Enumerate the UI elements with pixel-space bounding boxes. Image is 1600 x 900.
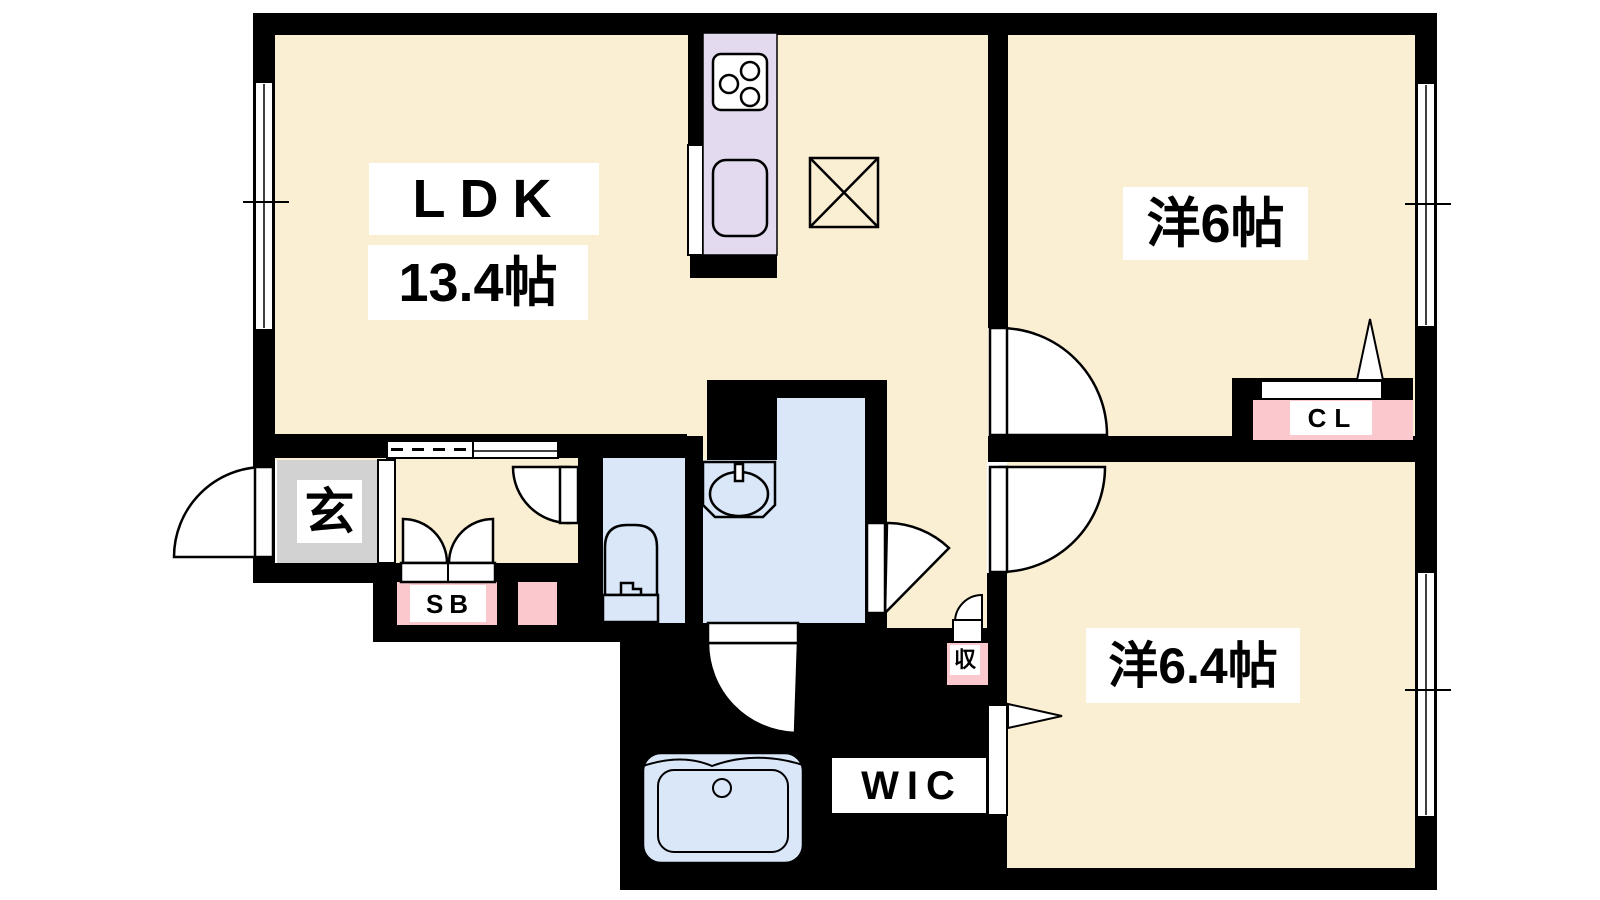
washroom-floor-upper bbox=[777, 398, 865, 460]
washbasin-icon bbox=[703, 462, 775, 517]
wall-wet-bottom-band bbox=[373, 623, 887, 642]
wall-toilet-left bbox=[578, 458, 603, 623]
room-label-entrance: 玄 bbox=[297, 480, 362, 543]
stove-icon bbox=[713, 54, 767, 110]
wall-entrance-bottom bbox=[253, 563, 393, 583]
kitchen-counter bbox=[703, 33, 777, 255]
room-label-storage: 収 bbox=[950, 645, 980, 675]
wall-toilet-right bbox=[685, 436, 703, 623]
bathtub-icon bbox=[643, 753, 803, 863]
wall-kitchen-left bbox=[688, 35, 703, 145]
wall-top bbox=[253, 13, 1437, 35]
room-label-ldk: LDK bbox=[369, 163, 599, 235]
kitchen-sink bbox=[713, 160, 767, 236]
floorplan-drawing bbox=[0, 0, 1600, 900]
wall-washroom-top bbox=[777, 380, 887, 398]
wall-bedroom-divider-upper bbox=[988, 35, 1008, 328]
entrance-step bbox=[378, 460, 395, 563]
room-label-west6: 洋6帖 bbox=[1123, 187, 1308, 260]
entrance-door-swing bbox=[174, 467, 273, 557]
toilet-icon bbox=[603, 525, 658, 622]
kitchen-passthrough bbox=[688, 145, 703, 255]
storage-zone-small bbox=[518, 582, 557, 625]
room-size-label-ldk: 13.4帖 bbox=[368, 245, 588, 320]
room-label-closet: CL bbox=[1290, 401, 1372, 435]
opening-plain bbox=[473, 441, 558, 458]
wall-kitchen-cap bbox=[690, 255, 777, 278]
wall-washroom-notch bbox=[707, 380, 777, 460]
room-label-west64: 洋6.4帖 bbox=[1086, 628, 1300, 703]
wall-bottom bbox=[987, 868, 1437, 890]
room-label-wic: WIC bbox=[832, 758, 986, 813]
floorplan-canvas: LDK 13.4帖 洋6帖 洋6.4帖 WIC CL SB 玄 収 bbox=[0, 0, 1600, 900]
room-label-shoebox: SB bbox=[410, 585, 486, 622]
